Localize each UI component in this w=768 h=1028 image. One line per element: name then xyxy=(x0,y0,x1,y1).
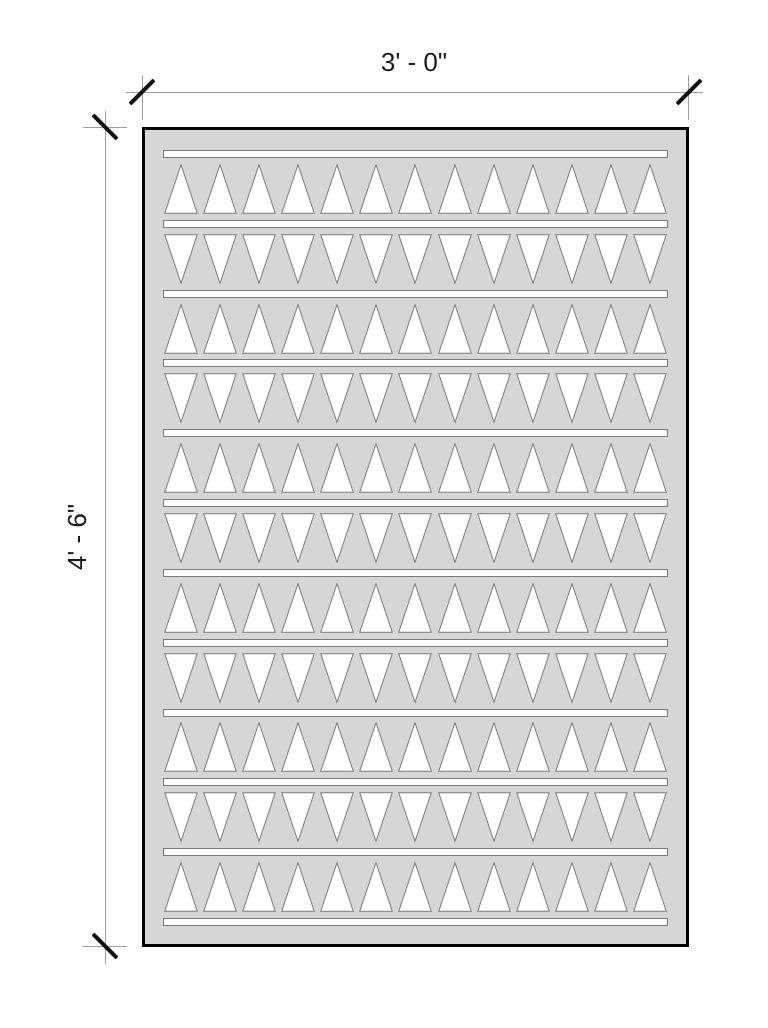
triangle-down-cutout xyxy=(633,234,667,284)
triangle-down-cutout xyxy=(594,234,628,284)
slat-cutout xyxy=(163,569,668,577)
triangle-down-cutout xyxy=(242,513,276,563)
triangle-up-cutout xyxy=(555,443,589,493)
triangle-up-cutout xyxy=(477,583,511,633)
triangle-up-cutout xyxy=(320,304,354,354)
triangle-down-cutout xyxy=(633,513,667,563)
triangle-down-cutout xyxy=(203,234,237,284)
triangle-down-cutout xyxy=(633,373,667,423)
triangle-down-cutout xyxy=(516,234,550,284)
triangle-down-cutout xyxy=(359,653,393,703)
triangle-down-cutout xyxy=(398,513,432,563)
triangle-down-cutout xyxy=(633,653,667,703)
triangle-up-cutout xyxy=(477,862,511,912)
triangle-row-down xyxy=(163,373,668,423)
triangle-up-cutout xyxy=(633,443,667,493)
triangle-up-cutout xyxy=(281,583,315,633)
triangle-down-cutout xyxy=(203,653,237,703)
triangle-up-cutout xyxy=(555,862,589,912)
triangle-up-cutout xyxy=(633,583,667,633)
slat-cutout xyxy=(163,220,668,228)
triangle-down-cutout xyxy=(320,653,354,703)
triangle-row-up xyxy=(163,304,668,354)
triangle-up-cutout xyxy=(477,443,511,493)
triangle-down-cutout xyxy=(555,234,589,284)
triangle-down-cutout xyxy=(438,653,472,703)
drawing-canvas: 3' - 0" 4' - 6" xyxy=(0,0,768,1028)
triangle-down-cutout xyxy=(594,513,628,563)
triangle-down-cutout xyxy=(555,653,589,703)
triangle-row-up xyxy=(163,583,668,633)
triangle-down-cutout xyxy=(320,373,354,423)
triangle-up-cutout xyxy=(516,862,550,912)
triangle-up-cutout xyxy=(203,443,237,493)
triangle-down-cutout xyxy=(281,234,315,284)
width-dimension-line xyxy=(126,92,703,93)
width-dimension-label: 3' - 0" xyxy=(314,46,514,78)
triangle-up-cutout xyxy=(594,164,628,214)
triangle-up-cutout xyxy=(438,443,472,493)
triangle-down-cutout xyxy=(281,373,315,423)
height-dimension-label: 4' - 6" xyxy=(61,437,93,637)
triangle-up-cutout xyxy=(164,583,198,633)
triangle-up-cutout xyxy=(320,862,354,912)
triangle-down-cutout xyxy=(203,513,237,563)
panel-cutout-pattern xyxy=(145,130,686,944)
triangle-up-cutout xyxy=(242,583,276,633)
triangle-up-cutout xyxy=(555,304,589,354)
slat-cutout xyxy=(163,639,668,647)
triangle-down-cutout xyxy=(438,792,472,842)
triangle-up-cutout xyxy=(398,304,432,354)
triangle-up-cutout xyxy=(320,583,354,633)
triangle-up-cutout xyxy=(516,443,550,493)
triangle-down-cutout xyxy=(633,792,667,842)
triangle-up-cutout xyxy=(594,304,628,354)
triangle-up-cutout xyxy=(242,443,276,493)
triangle-up-cutout xyxy=(164,443,198,493)
extension-line-top-left xyxy=(142,75,143,120)
triangle-up-cutout xyxy=(320,722,354,772)
triangle-up-cutout xyxy=(242,862,276,912)
triangle-row-down xyxy=(163,653,668,703)
slat-cutout xyxy=(163,848,668,856)
triangle-down-cutout xyxy=(516,792,550,842)
triangle-up-cutout xyxy=(633,164,667,214)
triangle-up-cutout xyxy=(633,862,667,912)
triangle-down-cutout xyxy=(164,513,198,563)
triangle-down-cutout xyxy=(477,653,511,703)
triangle-up-cutout xyxy=(594,862,628,912)
triangle-down-cutout xyxy=(516,653,550,703)
triangle-up-cutout xyxy=(203,862,237,912)
triangle-up-cutout xyxy=(398,164,432,214)
slat-cutout xyxy=(163,150,668,158)
triangle-up-cutout xyxy=(555,583,589,633)
triangle-row-down xyxy=(163,234,668,284)
triangle-up-cutout xyxy=(555,722,589,772)
triangle-up-cutout xyxy=(477,722,511,772)
triangle-up-cutout xyxy=(438,304,472,354)
triangle-up-cutout xyxy=(359,722,393,772)
slat-cutout xyxy=(163,918,668,926)
triangle-down-cutout xyxy=(594,653,628,703)
triangle-up-cutout xyxy=(438,583,472,633)
slat-cutout xyxy=(163,429,668,437)
triangle-down-cutout xyxy=(359,373,393,423)
triangle-up-cutout xyxy=(398,583,432,633)
triangle-up-cutout xyxy=(555,164,589,214)
triangle-up-cutout xyxy=(477,304,511,354)
triangle-up-cutout xyxy=(281,722,315,772)
triangle-up-cutout xyxy=(203,304,237,354)
triangle-down-cutout xyxy=(281,513,315,563)
triangle-up-cutout xyxy=(477,164,511,214)
triangle-down-cutout xyxy=(477,792,511,842)
triangle-up-cutout xyxy=(203,722,237,772)
height-dimension-line xyxy=(105,111,106,964)
triangle-down-cutout xyxy=(438,513,472,563)
triangle-down-cutout xyxy=(398,653,432,703)
triangle-up-cutout xyxy=(633,722,667,772)
triangle-down-cutout xyxy=(398,792,432,842)
triangle-up-cutout xyxy=(438,722,472,772)
triangle-up-cutout xyxy=(281,164,315,214)
triangle-up-cutout xyxy=(438,164,472,214)
triangle-up-cutout xyxy=(242,164,276,214)
triangle-down-cutout xyxy=(477,513,511,563)
triangle-up-cutout xyxy=(359,304,393,354)
triangle-down-cutout xyxy=(281,653,315,703)
triangle-down-cutout xyxy=(359,792,393,842)
triangle-down-cutout xyxy=(164,373,198,423)
triangle-up-cutout xyxy=(438,862,472,912)
triangle-down-cutout xyxy=(555,792,589,842)
slat-cutout xyxy=(163,359,668,367)
slat-cutout xyxy=(163,778,668,786)
triangle-down-cutout xyxy=(398,373,432,423)
triangle-up-cutout xyxy=(516,164,550,214)
triangle-row-down xyxy=(163,513,668,563)
perforated-panel xyxy=(142,127,689,947)
triangle-down-cutout xyxy=(203,792,237,842)
triangle-down-cutout xyxy=(203,373,237,423)
triangle-row-down xyxy=(163,792,668,842)
triangle-up-cutout xyxy=(164,722,198,772)
triangle-row-up xyxy=(163,443,668,493)
triangle-up-cutout xyxy=(516,722,550,772)
triangle-up-cutout xyxy=(242,304,276,354)
triangle-down-cutout xyxy=(594,373,628,423)
triangle-down-cutout xyxy=(398,234,432,284)
triangle-down-cutout xyxy=(516,373,550,423)
triangle-down-cutout xyxy=(320,513,354,563)
triangle-up-cutout xyxy=(594,583,628,633)
triangle-down-cutout xyxy=(164,792,198,842)
triangle-down-cutout xyxy=(516,513,550,563)
slat-cutout xyxy=(163,499,668,507)
triangle-up-cutout xyxy=(281,443,315,493)
triangle-up-cutout xyxy=(320,443,354,493)
triangle-up-cutout xyxy=(203,583,237,633)
triangle-down-cutout xyxy=(281,792,315,842)
triangle-row-up xyxy=(163,722,668,772)
triangle-up-cutout xyxy=(359,862,393,912)
triangle-down-cutout xyxy=(320,792,354,842)
triangle-up-cutout xyxy=(516,304,550,354)
extension-line-top-right xyxy=(688,75,689,120)
triangle-up-cutout xyxy=(516,583,550,633)
triangle-down-cutout xyxy=(164,653,198,703)
triangle-down-cutout xyxy=(477,234,511,284)
slat-cutout xyxy=(163,709,668,717)
triangle-up-cutout xyxy=(164,164,198,214)
triangle-down-cutout xyxy=(320,234,354,284)
triangle-up-cutout xyxy=(594,722,628,772)
triangle-up-cutout xyxy=(242,722,276,772)
triangle-down-cutout xyxy=(555,513,589,563)
triangle-up-cutout xyxy=(359,164,393,214)
triangle-up-cutout xyxy=(164,862,198,912)
triangle-down-cutout xyxy=(164,234,198,284)
triangle-up-cutout xyxy=(281,304,315,354)
triangle-up-cutout xyxy=(320,164,354,214)
triangle-up-cutout xyxy=(594,443,628,493)
triangle-down-cutout xyxy=(594,792,628,842)
triangle-down-cutout xyxy=(242,653,276,703)
triangle-up-cutout xyxy=(164,304,198,354)
triangle-up-cutout xyxy=(398,862,432,912)
triangle-up-cutout xyxy=(398,722,432,772)
triangle-row-up xyxy=(163,862,668,912)
triangle-down-cutout xyxy=(242,792,276,842)
triangle-down-cutout xyxy=(477,373,511,423)
triangle-down-cutout xyxy=(242,234,276,284)
slat-cutout xyxy=(163,290,668,298)
triangle-down-cutout xyxy=(555,373,589,423)
triangle-up-cutout xyxy=(203,164,237,214)
triangle-up-cutout xyxy=(633,304,667,354)
triangle-down-cutout xyxy=(438,373,472,423)
triangle-up-cutout xyxy=(359,583,393,633)
triangle-up-cutout xyxy=(281,862,315,912)
triangle-down-cutout xyxy=(359,513,393,563)
triangle-up-cutout xyxy=(398,443,432,493)
triangle-down-cutout xyxy=(242,373,276,423)
triangle-down-cutout xyxy=(438,234,472,284)
triangle-row-up xyxy=(163,164,668,214)
triangle-up-cutout xyxy=(359,443,393,493)
triangle-down-cutout xyxy=(359,234,393,284)
